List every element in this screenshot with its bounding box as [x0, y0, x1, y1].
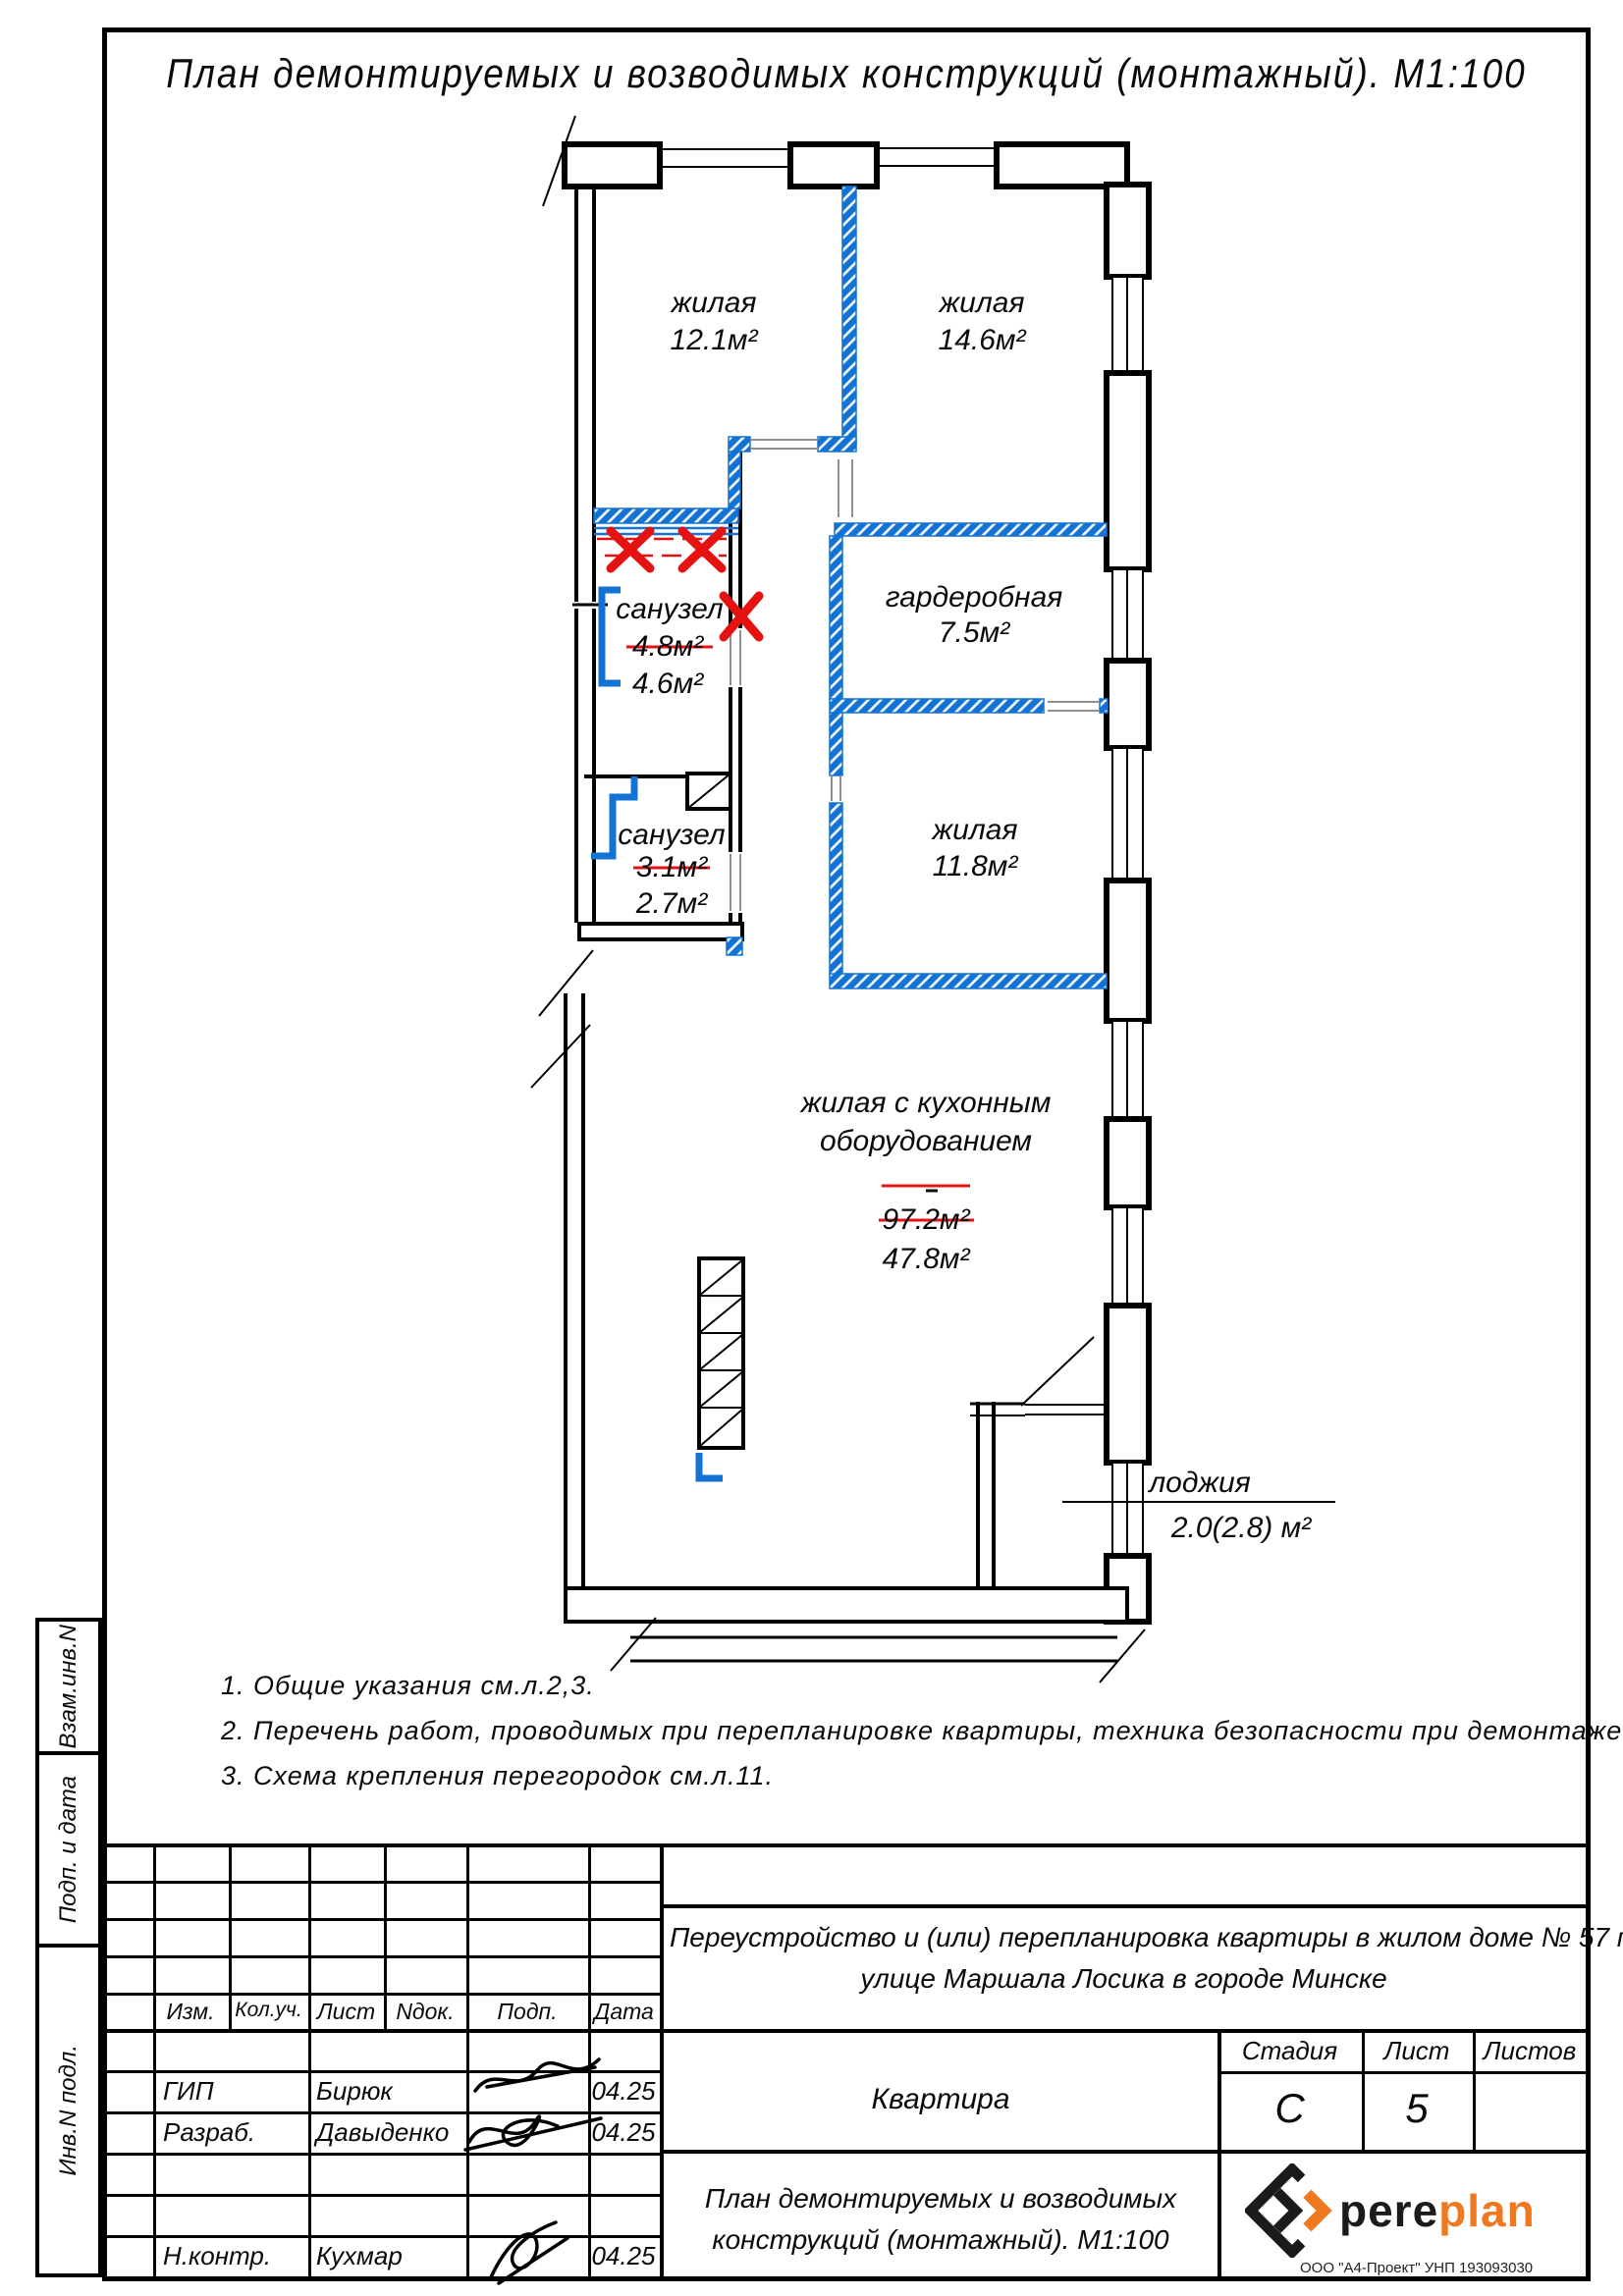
- room-bath2-area-new: 2.7м²: [635, 887, 708, 920]
- room-bath1-area-old: 4.8м²: [632, 630, 704, 663]
- room-kitchen-area-old: 97.2м²: [883, 1203, 971, 1236]
- drawing-sheet: План демонтируемых и возводимых конструк…: [0, 0, 1623, 2296]
- col-ndok: Nдок.: [384, 1999, 466, 2025]
- row-nkontr-date: 04.25: [584, 2241, 663, 2271]
- side-cell-vzam: Взам.инв.N: [39, 1622, 98, 1755]
- room-loggia-area: 2.0(2.8) м²: [1170, 1512, 1312, 1544]
- room-loggia-name: лоджия: [1147, 1467, 1251, 1499]
- kitchen-unit: [699, 1258, 743, 1448]
- row-nkontr-role: Н.контр.: [163, 2241, 271, 2271]
- row-razrab-role: Разраб.: [163, 2117, 255, 2148]
- pereplan-logo-icon: [1245, 2163, 1339, 2258]
- side-label-vzam: Взам.инв.N: [55, 1625, 82, 1748]
- side-label-podp: Подп. и дата: [55, 1776, 82, 1923]
- room-wardrobe-area: 7.5м²: [939, 616, 1010, 649]
- drawing-name-line1: План демонтируемых и возводимых: [668, 2183, 1214, 2215]
- note-2: 2. Перечень работ, проводимых при перепл…: [221, 1716, 1623, 1746]
- floor-plan: жилая 12.1м² жилая 14.6м² санузел 4.8м² …: [0, 0, 1623, 1688]
- row-gip-name: Бирюк: [316, 2076, 393, 2107]
- col-izm: Изм.: [151, 1999, 230, 2025]
- sheets-label: Листов: [1475, 2036, 1585, 2066]
- sheet-label: Лист: [1365, 2036, 1469, 2066]
- side-cell-podp: Подп. и дата: [39, 1755, 98, 1948]
- stage-label: Стадия: [1223, 2036, 1356, 2066]
- row-razrab-name: Давыденко: [316, 2117, 449, 2148]
- project-title-line2: улице Маршала Лосика в городе Минске: [670, 1963, 1578, 1995]
- room-bath1-name: санузел: [616, 593, 723, 625]
- signature-razrab: [461, 2099, 609, 2163]
- room-living2-name: жилая: [938, 287, 1025, 319]
- side-cell-inv: Инв.N подл.: [39, 1948, 98, 2273]
- room-bath2-area-old: 3.1м²: [636, 851, 708, 883]
- room-living1-name: жилая: [670, 287, 757, 319]
- room-kitchen-area-new: 47.8м²: [883, 1243, 971, 1275]
- logo-text-plan: plan: [1438, 2185, 1536, 2236]
- room-bath2-name: санузел: [618, 819, 725, 851]
- stage-value: С: [1223, 2085, 1356, 2132]
- row-gip-role: ГИП: [163, 2076, 214, 2107]
- note-3: 3. Схема крепления перегородок см.л.11.: [221, 1761, 774, 1791]
- sheet-value: 5: [1365, 2085, 1469, 2132]
- room-living3-name: жилая: [931, 814, 1018, 846]
- room-kitchen-name-line2: оборудованием: [820, 1125, 1032, 1157]
- object-name: Квартира: [668, 2083, 1214, 2116]
- side-stamp-strip: Взам.инв.N Подп. и дата Инв.N подл.: [35, 1618, 102, 2277]
- room-bath1-area-new: 4.6м²: [632, 667, 704, 700]
- side-label-inv: Инв.N подл.: [55, 2045, 82, 2176]
- drawing-name-line2: конструкций (монтажный). М1:100: [668, 2224, 1214, 2256]
- logo-block: pereplan ООО "А4-Проект" УНП 193093030: [1245, 2163, 1579, 2276]
- room-living2-area: 14.6м²: [939, 324, 1027, 356]
- room-living1-area: 12.1м²: [671, 324, 759, 356]
- col-list: Лист: [308, 1999, 384, 2025]
- pereplan-wordmark: pereplan: [1339, 2188, 1536, 2233]
- col-podp: Подп.: [466, 1999, 588, 2025]
- note-1: 1. Общие указания см.л.2,3.: [221, 1671, 595, 1701]
- room-living3-area: 11.8м²: [933, 850, 1019, 882]
- logo-company-line: ООО "А4-Проект" УНП 193093030: [1300, 2260, 1579, 2276]
- project-title-line1: Переустройство и (или) перепланировка кв…: [670, 1922, 1578, 1953]
- col-koluch: Кол.уч.: [229, 1999, 308, 2022]
- signature-nkontr: [477, 2216, 585, 2287]
- logo-text-pere: pere: [1339, 2185, 1438, 2236]
- row-nkontr-name: Кухмар: [316, 2241, 403, 2271]
- room-wardrobe-name: гардеробная: [886, 581, 1063, 614]
- col-data: Дата: [588, 1999, 660, 2025]
- door-openings: [730, 440, 1100, 911]
- room-kitchen-name-line1: жилая с кухонным: [799, 1087, 1052, 1119]
